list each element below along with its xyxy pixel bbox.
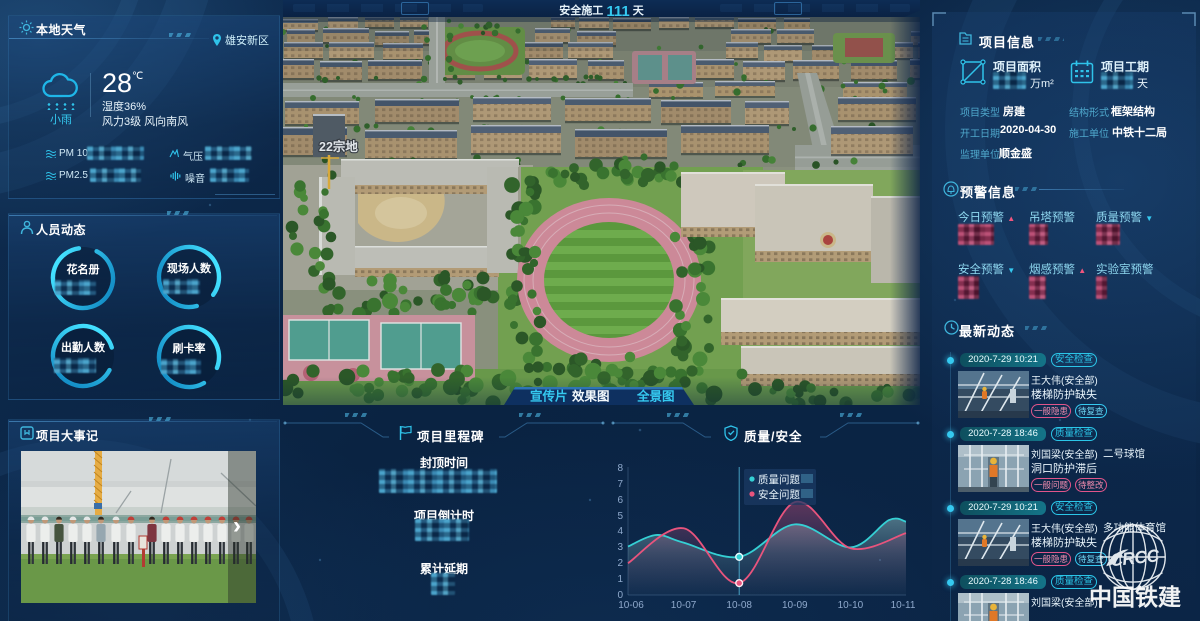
- svg-text:10-11: 10-11: [891, 600, 916, 611]
- svg-text:7: 7: [617, 479, 623, 490]
- svg-text:5: 5: [617, 511, 623, 522]
- svg-text:10-07: 10-07: [671, 600, 697, 611]
- svg-text:10-10: 10-10: [838, 600, 864, 611]
- svg-text:刷卡率: 刷卡率: [173, 341, 206, 355]
- svg-text:效果图: 效果图: [572, 389, 610, 404]
- svg-text:质量问题: 质量问题: [758, 473, 800, 486]
- svg-text:安全问题: 安全问题: [758, 488, 800, 501]
- svg-text:8: 8: [617, 463, 623, 474]
- svg-text:现场人数: 现场人数: [167, 261, 212, 275]
- svg-text:10-06: 10-06: [618, 600, 644, 611]
- svg-text:全景图: 全景图: [636, 389, 675, 404]
- svg-text:4: 4: [617, 526, 623, 537]
- svg-text:6: 6: [617, 495, 623, 506]
- svg-text:出勤人数: 出勤人数: [61, 340, 106, 354]
- svg-text:3: 3: [617, 542, 623, 553]
- svg-text:10-08: 10-08: [726, 600, 752, 611]
- svg-text:宣传片: 宣传片: [530, 389, 568, 404]
- svg-text:CRCC: CRCC: [1109, 545, 1160, 570]
- svg-text:1: 1: [617, 574, 623, 585]
- svg-text:2: 2: [617, 558, 623, 569]
- svg-text:10-09: 10-09: [782, 600, 808, 611]
- svg-text:花名册: 花名册: [67, 262, 100, 276]
